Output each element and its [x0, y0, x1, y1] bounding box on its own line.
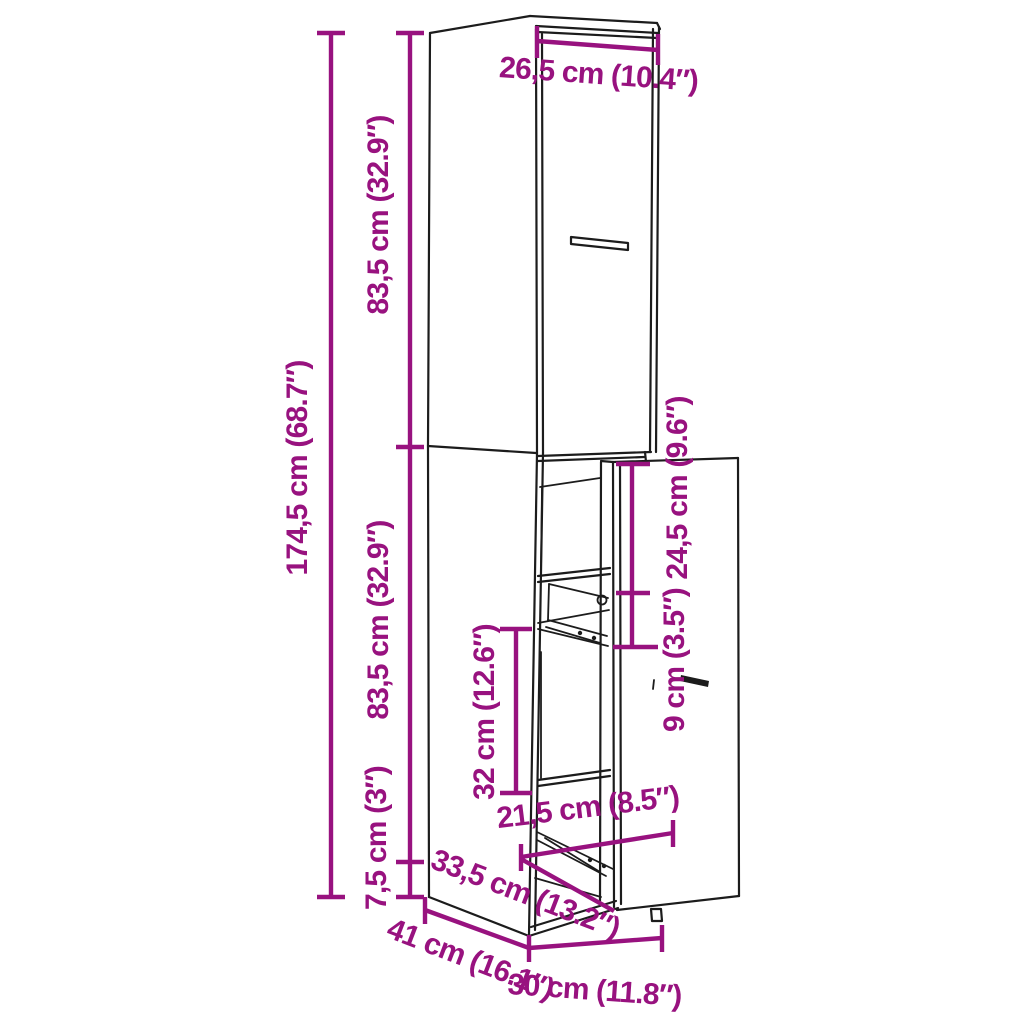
dim-label-handle-clearance: 9 cm (3.5″): [658, 588, 691, 732]
dim-label-top-clearance: 24,5 cm (9.6″): [661, 396, 694, 579]
basket-1-left-edge: [548, 584, 549, 620]
dim-label-drawer-width: 21,5 cm (8.5″): [495, 780, 681, 835]
dim-label-shelf-spacing: 32 cm (12.6″): [468, 624, 501, 800]
dim-label-lower-height: 83,5 cm (32.9″): [362, 520, 395, 719]
front-left-edge-inner: [542, 34, 543, 453]
division-line-side: [428, 446, 536, 453]
dim-total-height: [317, 33, 345, 897]
pullout-foot: [651, 909, 662, 921]
dim-label-cabinet-width: 30 cm (11.8″): [507, 968, 683, 1013]
dimension-labels: 26,5 cm (10.4″) 83,5 cm (32.9″) 174,5 cm…: [281, 51, 699, 1013]
dim-label-top-width: 26,5 cm (10.4″): [498, 51, 699, 98]
front-left-edge-outer: [536, 29, 537, 453]
left-panel-edge: [428, 33, 430, 446]
rail-screw: [602, 864, 606, 868]
pullout-right-edge: [738, 458, 739, 896]
compartment-top-right: [601, 461, 613, 462]
rail-1-mid: [546, 627, 600, 643]
interior-back-edge-1: [541, 488, 542, 572]
pullout-bottom-edge: [617, 896, 739, 910]
dim-shelf-spacing: [500, 629, 532, 793]
dim-upper-height: [396, 33, 424, 862]
lower-frame-top-edge: [538, 457, 644, 461]
cabinet-line-drawing: 26,5 cm (10.4″) 83,5 cm (32.9″) 174,5 cm…: [0, 0, 1024, 1024]
left-panel-edge-lower: [428, 446, 429, 897]
top-left-edge: [430, 16, 530, 33]
pullout-keyhole-mark: [653, 680, 654, 689]
dim-label-upper-height: 83,5 cm (32.9″): [362, 115, 395, 314]
compartment-right-edge: [600, 462, 601, 901]
rail-screw: [578, 631, 582, 635]
dim-plinth-height: [396, 862, 424, 897]
rail-1-lower: [538, 629, 608, 646]
opening-top-inner-edge: [540, 478, 600, 487]
rail-screw: [588, 858, 592, 862]
top-back-edge: [530, 16, 657, 23]
dim-label-plinth-height: 7,5 cm (3″): [360, 766, 393, 910]
rail-screw: [592, 636, 596, 640]
product-dimension-diagram: 26,5 cm (10.4″) 83,5 cm (32.9″) 174,5 cm…: [0, 0, 1024, 1024]
upper-door-bottom-edge: [538, 452, 651, 456]
pullout-left-edge-inner: [620, 462, 621, 904]
upper-door-handle: [571, 237, 628, 250]
dim-label-total-height: 174,5 cm (68.7″): [281, 360, 314, 575]
rail-2-mid: [545, 838, 600, 872]
